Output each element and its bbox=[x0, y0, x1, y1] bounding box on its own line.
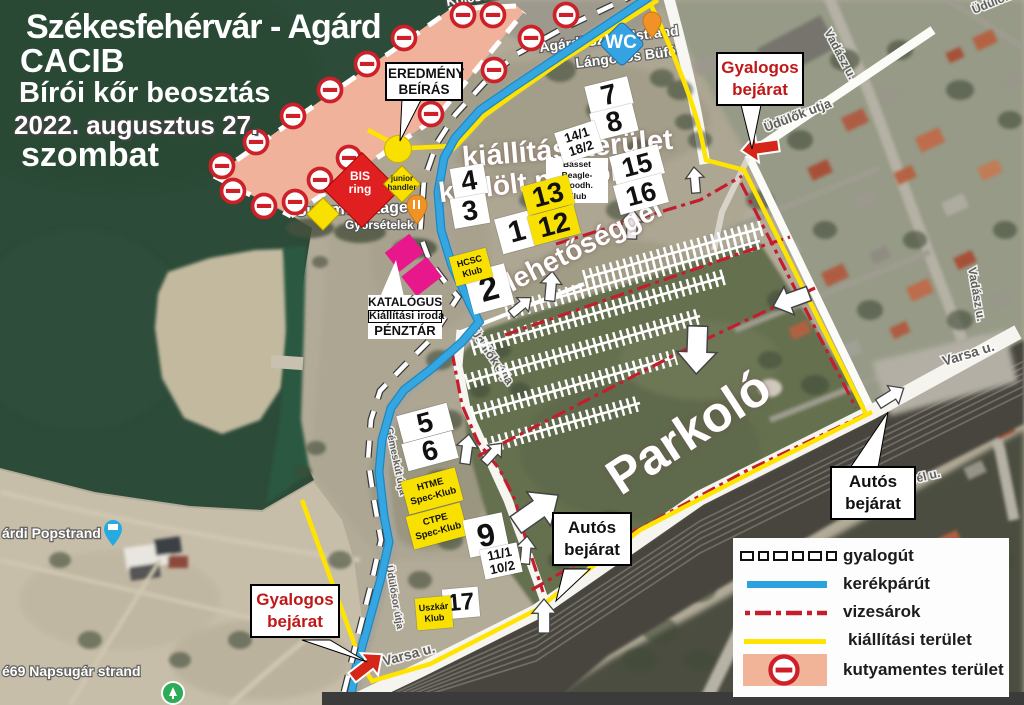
svg-text:é69 Napsugár strand: é69 Napsugár strand bbox=[2, 663, 141, 679]
svg-text:árdi Popstrand: árdi Popstrand bbox=[2, 525, 101, 541]
